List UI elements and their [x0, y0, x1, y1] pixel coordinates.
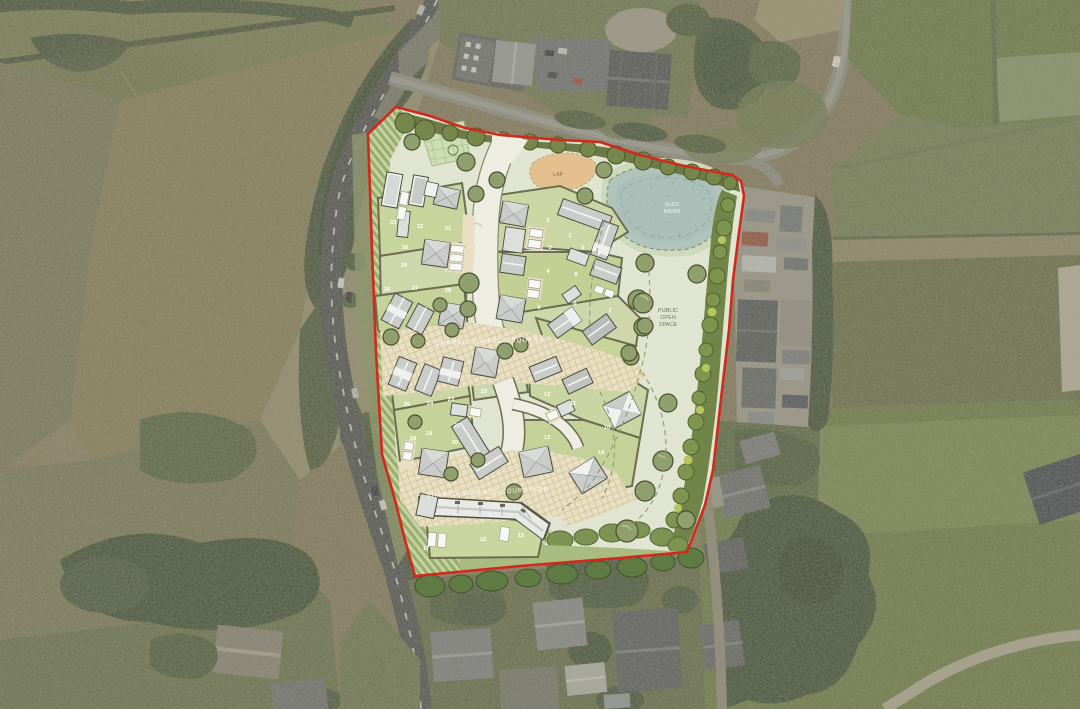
svg-text:19: 19	[426, 431, 433, 437]
svg-text:30: 30	[402, 245, 408, 251]
svg-text:10: 10	[604, 425, 610, 431]
svg-text:22: 22	[481, 389, 487, 395]
svg-text:24: 24	[427, 401, 434, 407]
svg-text:28: 28	[445, 288, 452, 294]
svg-text:26: 26	[384, 287, 391, 293]
svg-text:LAP: LAP	[553, 172, 564, 178]
svg-text:23: 23	[448, 397, 455, 403]
svg-text:13: 13	[544, 435, 551, 441]
svg-text:18: 18	[410, 436, 417, 442]
svg-text:14: 14	[598, 450, 605, 456]
svg-text:21: 21	[454, 423, 461, 429]
svg-text:PUBLIC: PUBLIC	[658, 308, 678, 314]
svg-text:7: 7	[608, 308, 611, 314]
svg-text:32: 32	[417, 224, 423, 230]
svg-text:12: 12	[544, 392, 550, 398]
svg-text:31: 31	[445, 226, 452, 232]
svg-text:20: 20	[452, 440, 458, 446]
svg-text:33: 33	[390, 220, 397, 226]
svg-text:11: 11	[570, 401, 577, 407]
svg-text:2: 2	[546, 218, 549, 224]
svg-text:16: 16	[480, 537, 487, 543]
svg-text:BASIN: BASIN	[664, 209, 681, 215]
svg-text:27: 27	[412, 286, 418, 292]
svg-text:25: 25	[404, 402, 411, 408]
svg-text:17: 17	[423, 546, 429, 552]
svg-text:OPEN: OPEN	[660, 315, 676, 321]
svg-text:SuDS: SuDS	[665, 202, 680, 208]
svg-text:29: 29	[401, 263, 408, 269]
svg-text:SPACE: SPACE	[659, 322, 678, 328]
svg-text:15: 15	[518, 533, 525, 539]
